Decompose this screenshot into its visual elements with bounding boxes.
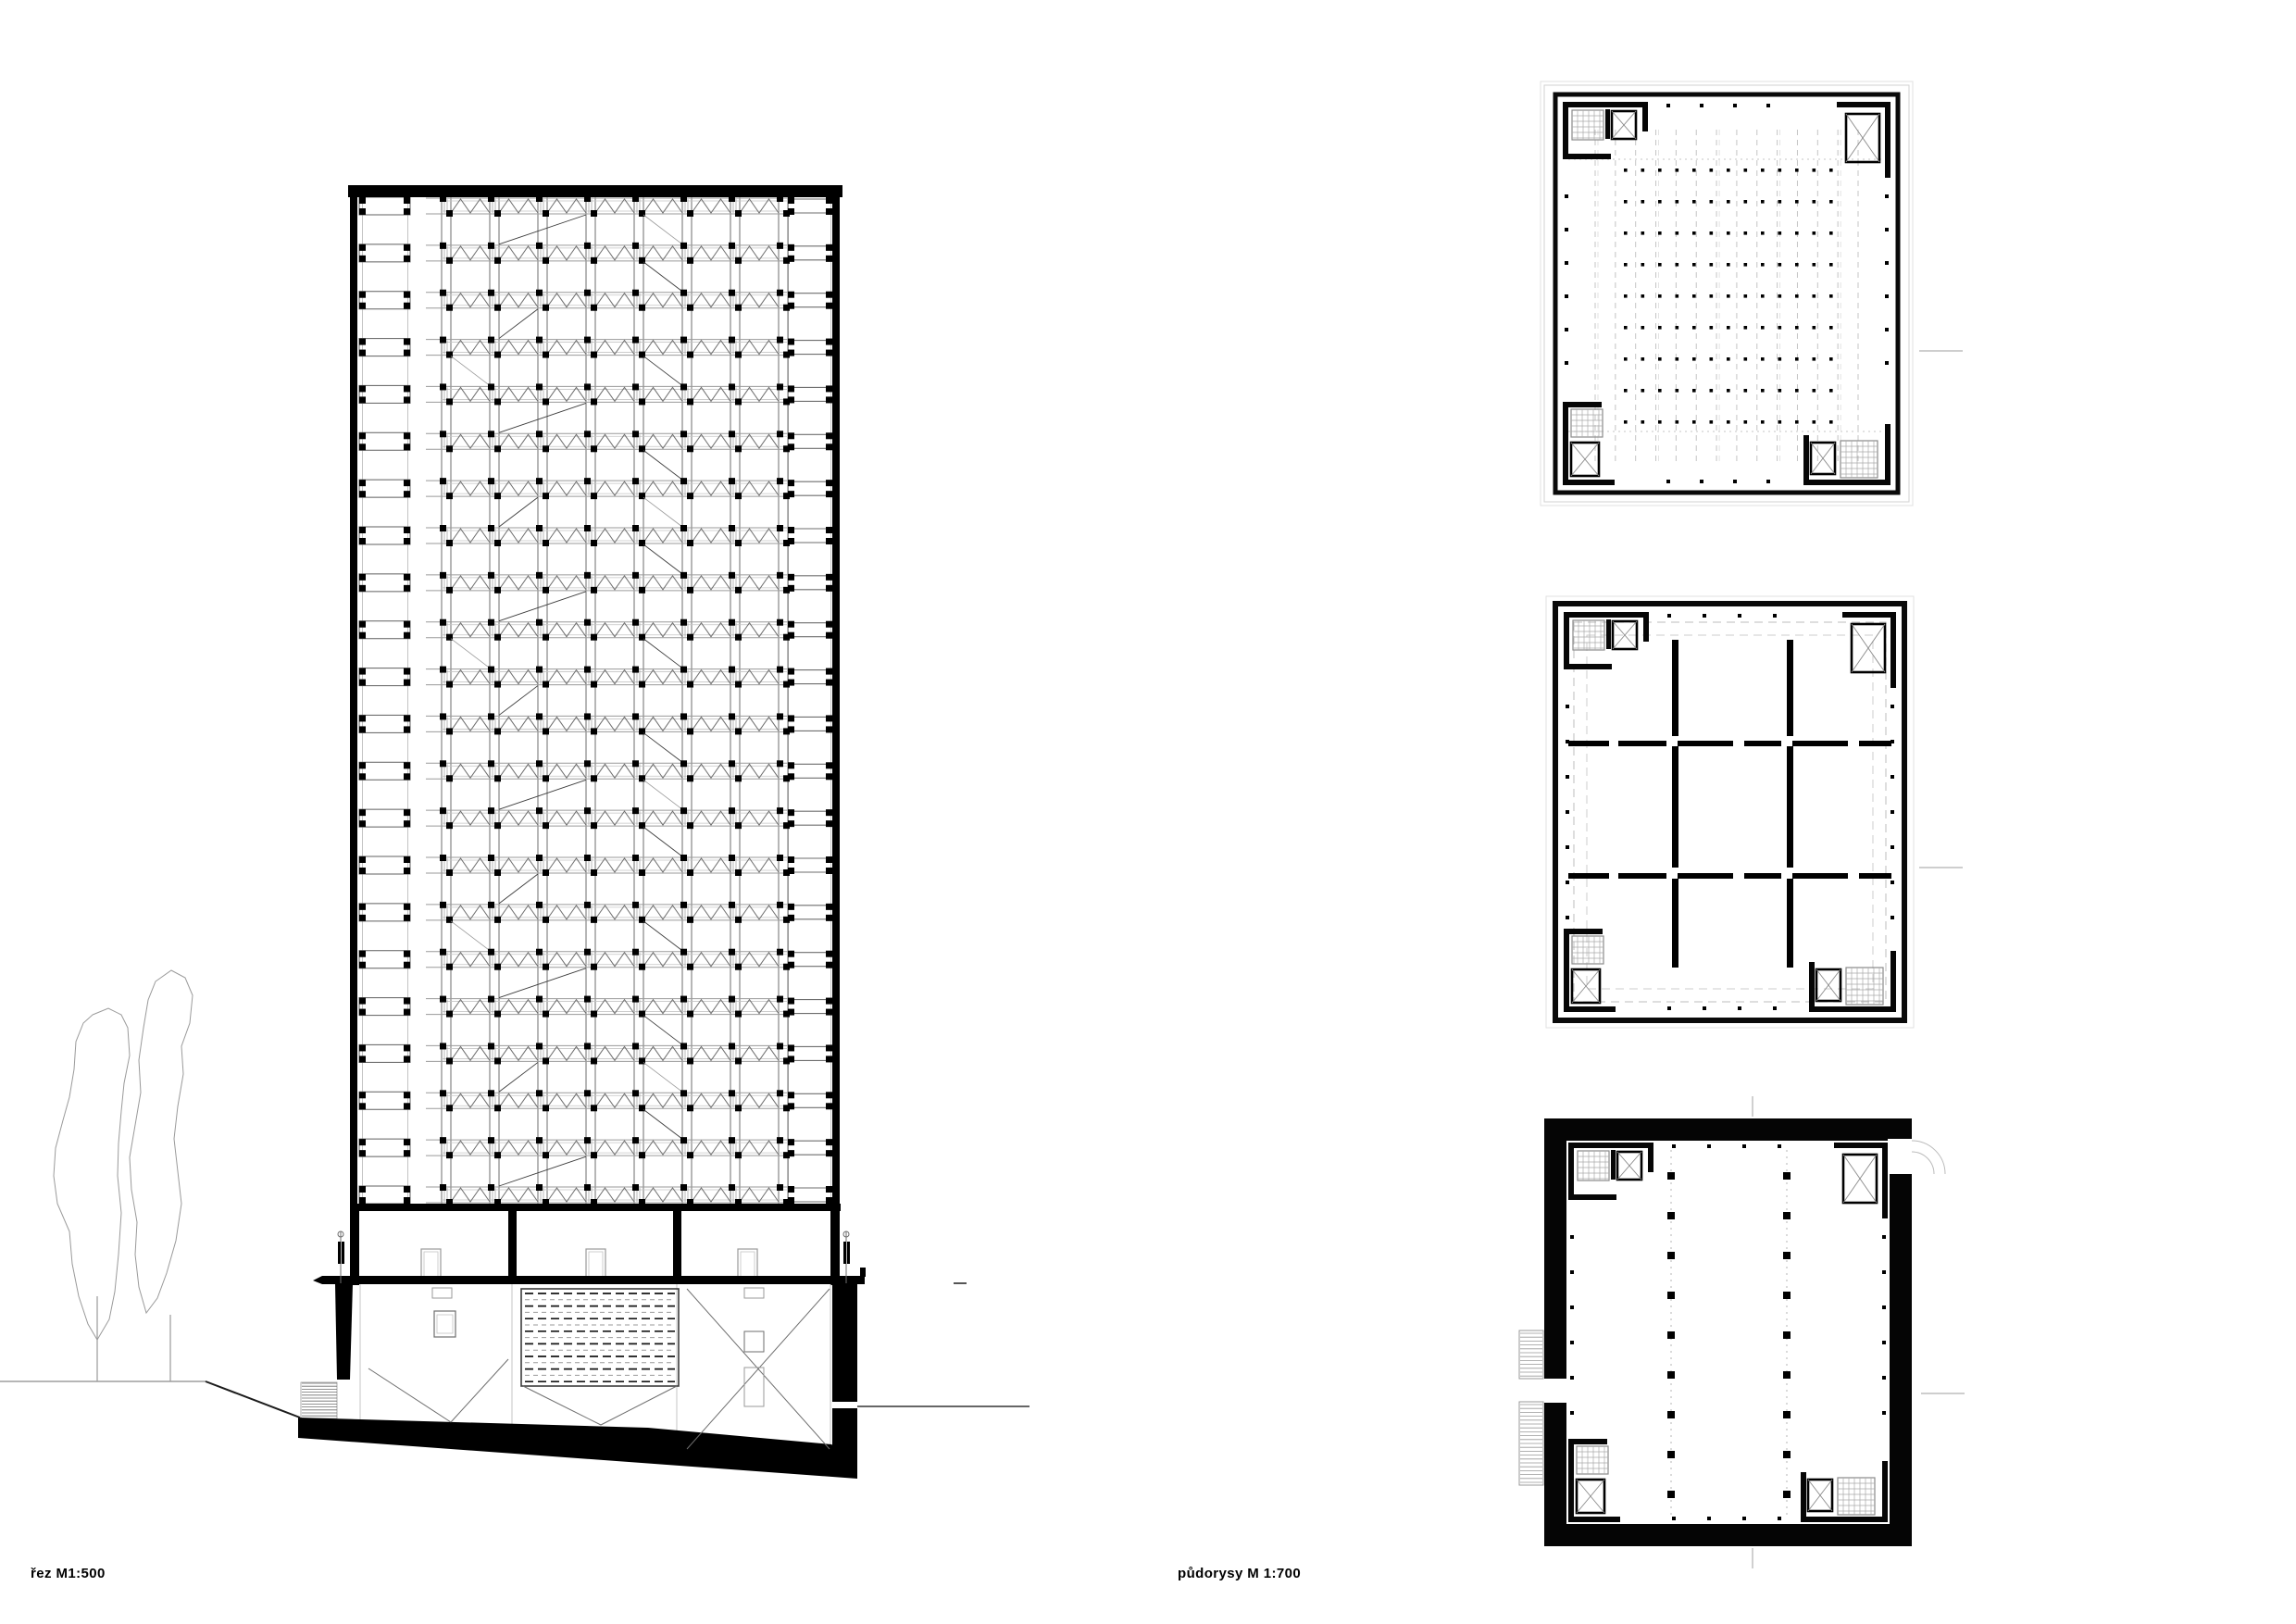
section-base [0, 1204, 1029, 1479]
tower-section [0, 185, 1029, 1479]
trees [54, 970, 193, 1381]
architectural-drawing [0, 0, 2296, 1624]
plans-scale-label: půdorysy M 1:700 [1178, 1566, 1301, 1581]
floor-plan-ground [1519, 1096, 1965, 1568]
floor-plan-walls [1546, 596, 1963, 1028]
section-scale-label: řez M1:500 [31, 1566, 106, 1581]
drawing-sheet: řez M1:500 půdorysy M 1:700 [0, 0, 2296, 1624]
floor-plan-typical [1541, 81, 1963, 506]
